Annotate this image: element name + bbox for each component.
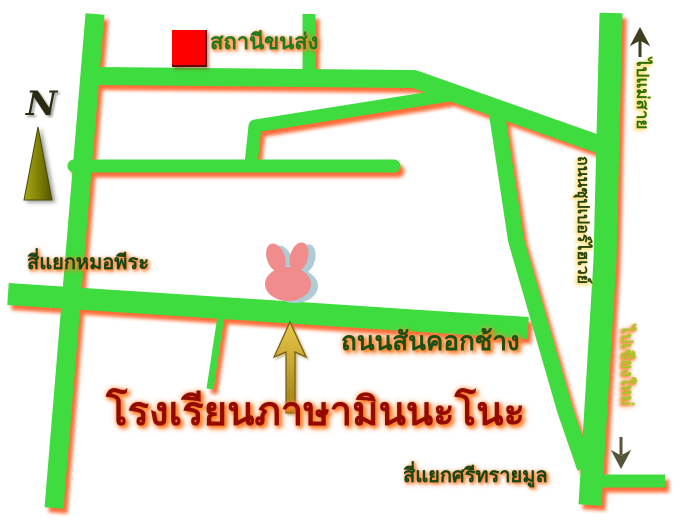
school-name-label: โรงเรียนภาษามินนะโนะ bbox=[106, 390, 525, 434]
to-chiang-mai-label: ไปเชียงใหม่ bbox=[618, 325, 636, 406]
down-arrow-icon bbox=[612, 437, 630, 468]
intersection-mo-pira-label: สี่แยกหมอพีระ bbox=[27, 251, 149, 273]
bus-station-marker bbox=[172, 30, 207, 67]
road-san-khok-chang-label: ถนนสันคอกช้าง bbox=[341, 328, 520, 357]
map-canvas: สถานีขนส่ง N สี่แยกหมอพีระ ถนนสันคอกช้าง… bbox=[0, 0, 680, 530]
to-mae-sai-label: ไปแม่สาย bbox=[631, 58, 651, 129]
north-compass-arrow-icon bbox=[24, 127, 52, 200]
road-superhighway-label: ถนนซุปเปอร์ไฮเวย์ bbox=[574, 156, 592, 284]
up-arrow-icon bbox=[631, 28, 649, 57]
bus-station-label: สถานีขนส่ง bbox=[210, 31, 318, 55]
compass-north-label: N bbox=[26, 86, 57, 123]
rabbit-icon bbox=[262, 240, 318, 303]
intersection-sri-sai-mun-label: สี่แยกศรีทรายมูล bbox=[403, 464, 548, 486]
